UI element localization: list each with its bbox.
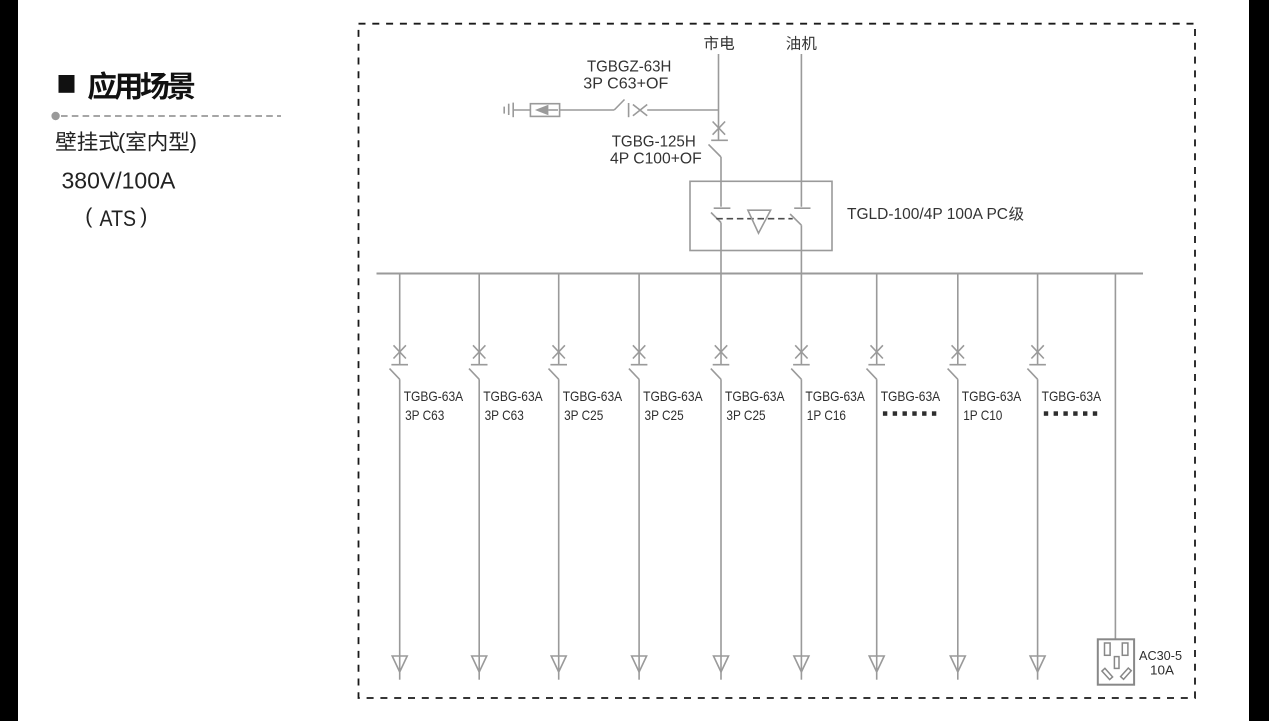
svg-text:AC30-5: AC30-5 — [1139, 649, 1182, 663]
svg-text:(: ( — [85, 205, 92, 228]
svg-text:TGBG-63A: TGBG-63A — [962, 388, 1022, 404]
svg-text:TGBG-63A: TGBG-63A — [483, 388, 543, 404]
svg-text:TGBG-63A: TGBG-63A — [805, 388, 865, 404]
svg-text:TGBG-63A: TGBG-63A — [404, 388, 464, 404]
svg-text:): ) — [140, 205, 147, 228]
svg-text:TGBG-63A: TGBG-63A — [1042, 388, 1102, 404]
svg-text:TGLD-100/4P 100A PC: TGLD-100/4P 100A PC — [847, 206, 1008, 223]
svg-text:(: ( — [118, 129, 126, 153]
svg-text:TGBG-63A: TGBG-63A — [725, 388, 785, 404]
svg-text:10A: 10A — [1150, 664, 1175, 678]
svg-text:TGBG-63A: TGBG-63A — [563, 388, 623, 404]
svg-text:1P C10: 1P C10 — [963, 407, 1002, 423]
svg-text:TGBG-63A: TGBG-63A — [881, 388, 941, 404]
svg-text:3P C63+OF: 3P C63+OF — [583, 76, 668, 93]
svg-text:TGBGZ-63H: TGBGZ-63H — [587, 59, 671, 76]
svg-text:380V/100A: 380V/100A — [62, 168, 176, 194]
svg-text:3P C25: 3P C25 — [564, 407, 603, 423]
svg-text:TGBG-125H: TGBG-125H — [612, 133, 696, 150]
svg-text:TGBG-63A: TGBG-63A — [643, 388, 703, 404]
svg-text:1P C16: 1P C16 — [807, 407, 846, 423]
svg-text:3P C63: 3P C63 — [485, 407, 524, 423]
svg-text:3P C63: 3P C63 — [405, 407, 444, 423]
svg-text:ATS: ATS — [100, 206, 137, 231]
svg-text:3P C25: 3P C25 — [645, 407, 684, 423]
svg-text:): ) — [190, 129, 197, 153]
svg-text:3P C25: 3P C25 — [726, 407, 765, 423]
svg-text:4P C100+OF: 4P C100+OF — [610, 150, 702, 167]
